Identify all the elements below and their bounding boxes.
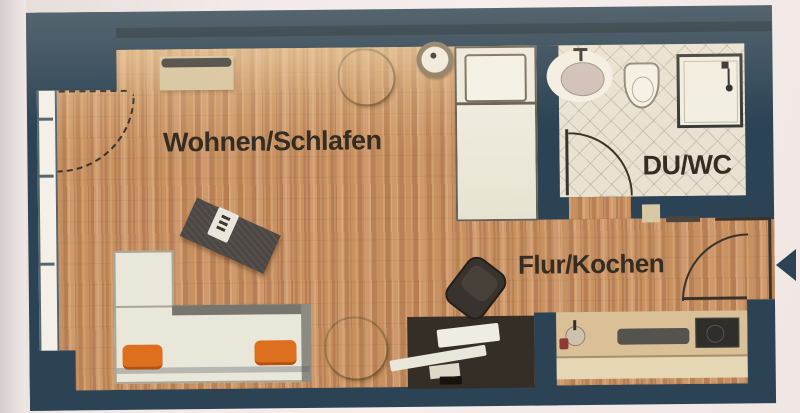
- blanket: [457, 105, 536, 220]
- floor-plant: [326, 318, 387, 379]
- toilet-bowl: [632, 76, 654, 102]
- potted-plant-top: [339, 50, 394, 105]
- photo-paper-edge: [0, 0, 26, 413]
- kitchen-faucet: [573, 320, 576, 330]
- sofa-cushion-right: [254, 340, 296, 365]
- room-label-shower-wc: DU/WC: [629, 149, 744, 181]
- round-side-table: [416, 41, 453, 77]
- hall-shelf-box: [642, 204, 660, 222]
- keyboard: [437, 323, 501, 348]
- desk: [407, 316, 535, 389]
- window: [37, 91, 60, 351]
- window-mullion: [38, 175, 54, 178]
- floor-plan: Wohnen/Schlafen DU/WC Flur/Kochen: [26, 5, 776, 411]
- wall-kitchen-nook: [534, 312, 557, 405]
- shower-drain-dot: [726, 85, 733, 92]
- bathroom-faucet-handle: [573, 48, 587, 51]
- shower-tray-line: [683, 60, 738, 123]
- office-chair-seat: [458, 263, 500, 305]
- sideboard-top: [161, 58, 231, 68]
- top-wall-core-line: [51, 21, 771, 39]
- room-label-hall-kitchen: Flur/Kochen: [498, 248, 683, 281]
- shower-hose-line: [728, 69, 730, 85]
- window-mullion: [39, 263, 55, 266]
- cooktop-ring: [706, 325, 724, 343]
- pillow: [464, 54, 526, 103]
- counter-edge-line: [557, 354, 748, 358]
- corner-wall-top-left: [36, 12, 117, 91]
- sofa-backrest: [172, 304, 311, 315]
- cutting-board: [617, 328, 689, 345]
- window-mullion: [37, 118, 53, 121]
- room-label-living-sleeping: Wohnen/Schlafen: [147, 125, 397, 159]
- table-lamp-dot: [430, 53, 436, 59]
- sideboard: [159, 56, 233, 91]
- shower: [676, 53, 743, 128]
- corner-wall-bottom-left: [29, 350, 76, 410]
- hall-shelf-bar: [666, 216, 700, 222]
- sofa-cushion-left: [122, 345, 162, 370]
- magazine-print: [216, 214, 231, 232]
- desk-item: [440, 376, 462, 384]
- bathroom-door-opening: [569, 197, 631, 220]
- entrance-arrow: [776, 249, 796, 281]
- cooktop: [695, 317, 739, 347]
- bed: [454, 46, 538, 222]
- kitchenette-counter: [556, 310, 748, 379]
- shower-head-icon: [721, 62, 728, 69]
- red-jar: [559, 338, 568, 349]
